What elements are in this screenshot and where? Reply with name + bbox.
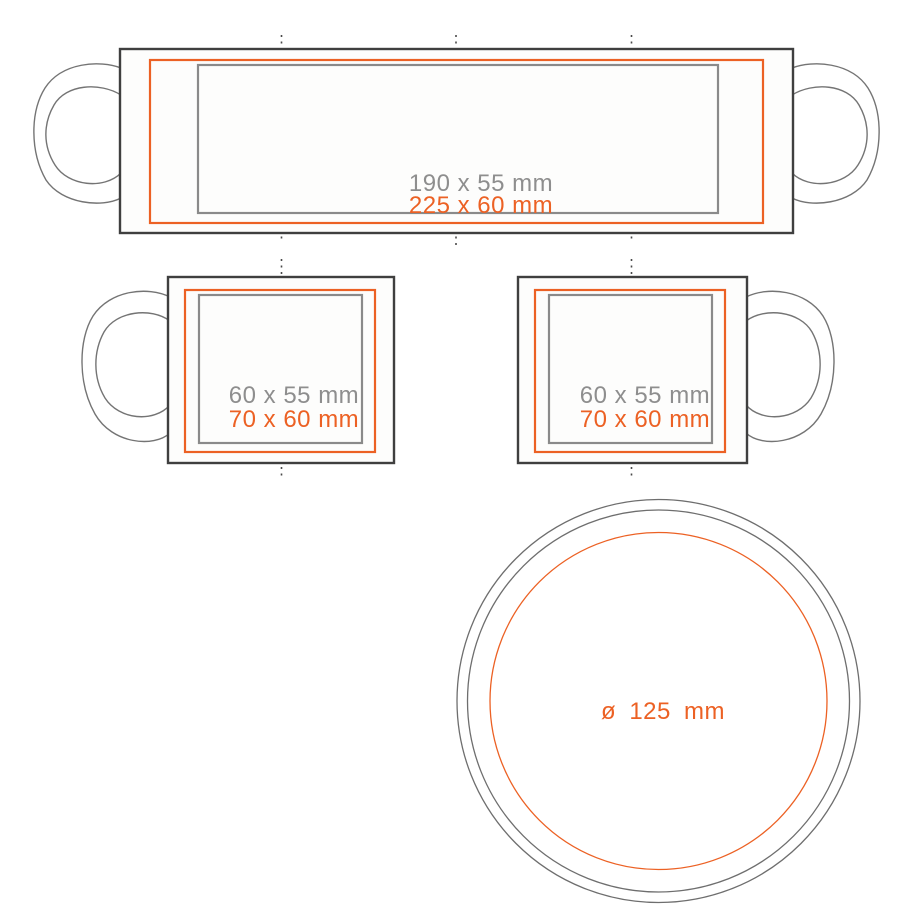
handle-inner-line — [746, 313, 820, 417]
side-left-print-area-label: 60 x 55 mm — [229, 382, 359, 409]
handle-left-icon — [82, 291, 170, 441]
handle-inner-line — [792, 87, 867, 184]
top-diameter-label: ø 125 mm — [601, 698, 725, 725]
handle-inner-line — [46, 87, 121, 184]
wrap-max-area-label: 225 x 60 mm — [409, 192, 553, 219]
handle-right-icon — [792, 64, 879, 203]
mug-print-area-diagram: 190 x 55 mm 225 x 60 mm 60 x 55 mm 70 x … — [0, 0, 900, 923]
handle-left-icon — [34, 64, 121, 203]
handle-inner-line — [96, 313, 170, 417]
wrap-view: 190 x 55 mm 225 x 60 mm — [34, 49, 879, 233]
side-view-left: 60 x 55 mm 70 x 60 mm — [82, 277, 394, 463]
side-view-right: 60 x 55 mm 70 x 60 mm — [518, 277, 834, 463]
top-view: ø 125 mm — [457, 500, 860, 903]
handle-outer-line — [34, 64, 121, 203]
diagram-canvas: 190 x 55 mm 225 x 60 mm 60 x 55 mm 70 x … — [0, 0, 900, 923]
side-right-print-area-label: 60 x 55 mm — [580, 382, 710, 409]
side-left-max-area-label: 70 x 60 mm — [229, 406, 359, 433]
handle-right-icon — [746, 291, 834, 441]
mug-body-outline — [168, 277, 394, 463]
handle-outer-line — [792, 64, 879, 203]
side-right-max-area-label: 70 x 60 mm — [580, 406, 710, 433]
